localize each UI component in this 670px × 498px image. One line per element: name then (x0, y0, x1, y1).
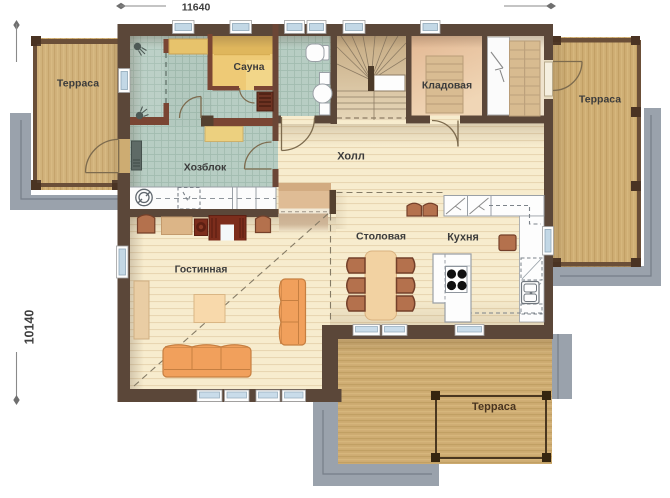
svg-text:Столовая: Столовая (356, 231, 406, 243)
svg-text:Кухня: Кухня (447, 232, 479, 244)
svg-text:Хозблок: Хозблок (184, 162, 227, 174)
svg-text:Терраса: Терраса (57, 78, 99, 90)
svg-text:Гостинная: Гостинная (175, 265, 228, 276)
svg-text:Сауна: Сауна (234, 62, 265, 73)
svg-text:11640: 11640 (182, 2, 211, 14)
svg-text:Терраса: Терраса (472, 401, 517, 413)
svg-text:Холл: Холл (337, 151, 365, 163)
svg-text:Терраса: Терраса (579, 94, 621, 106)
svg-text:Кладовая: Кладовая (422, 80, 472, 92)
svg-text:10140: 10140 (23, 310, 37, 345)
